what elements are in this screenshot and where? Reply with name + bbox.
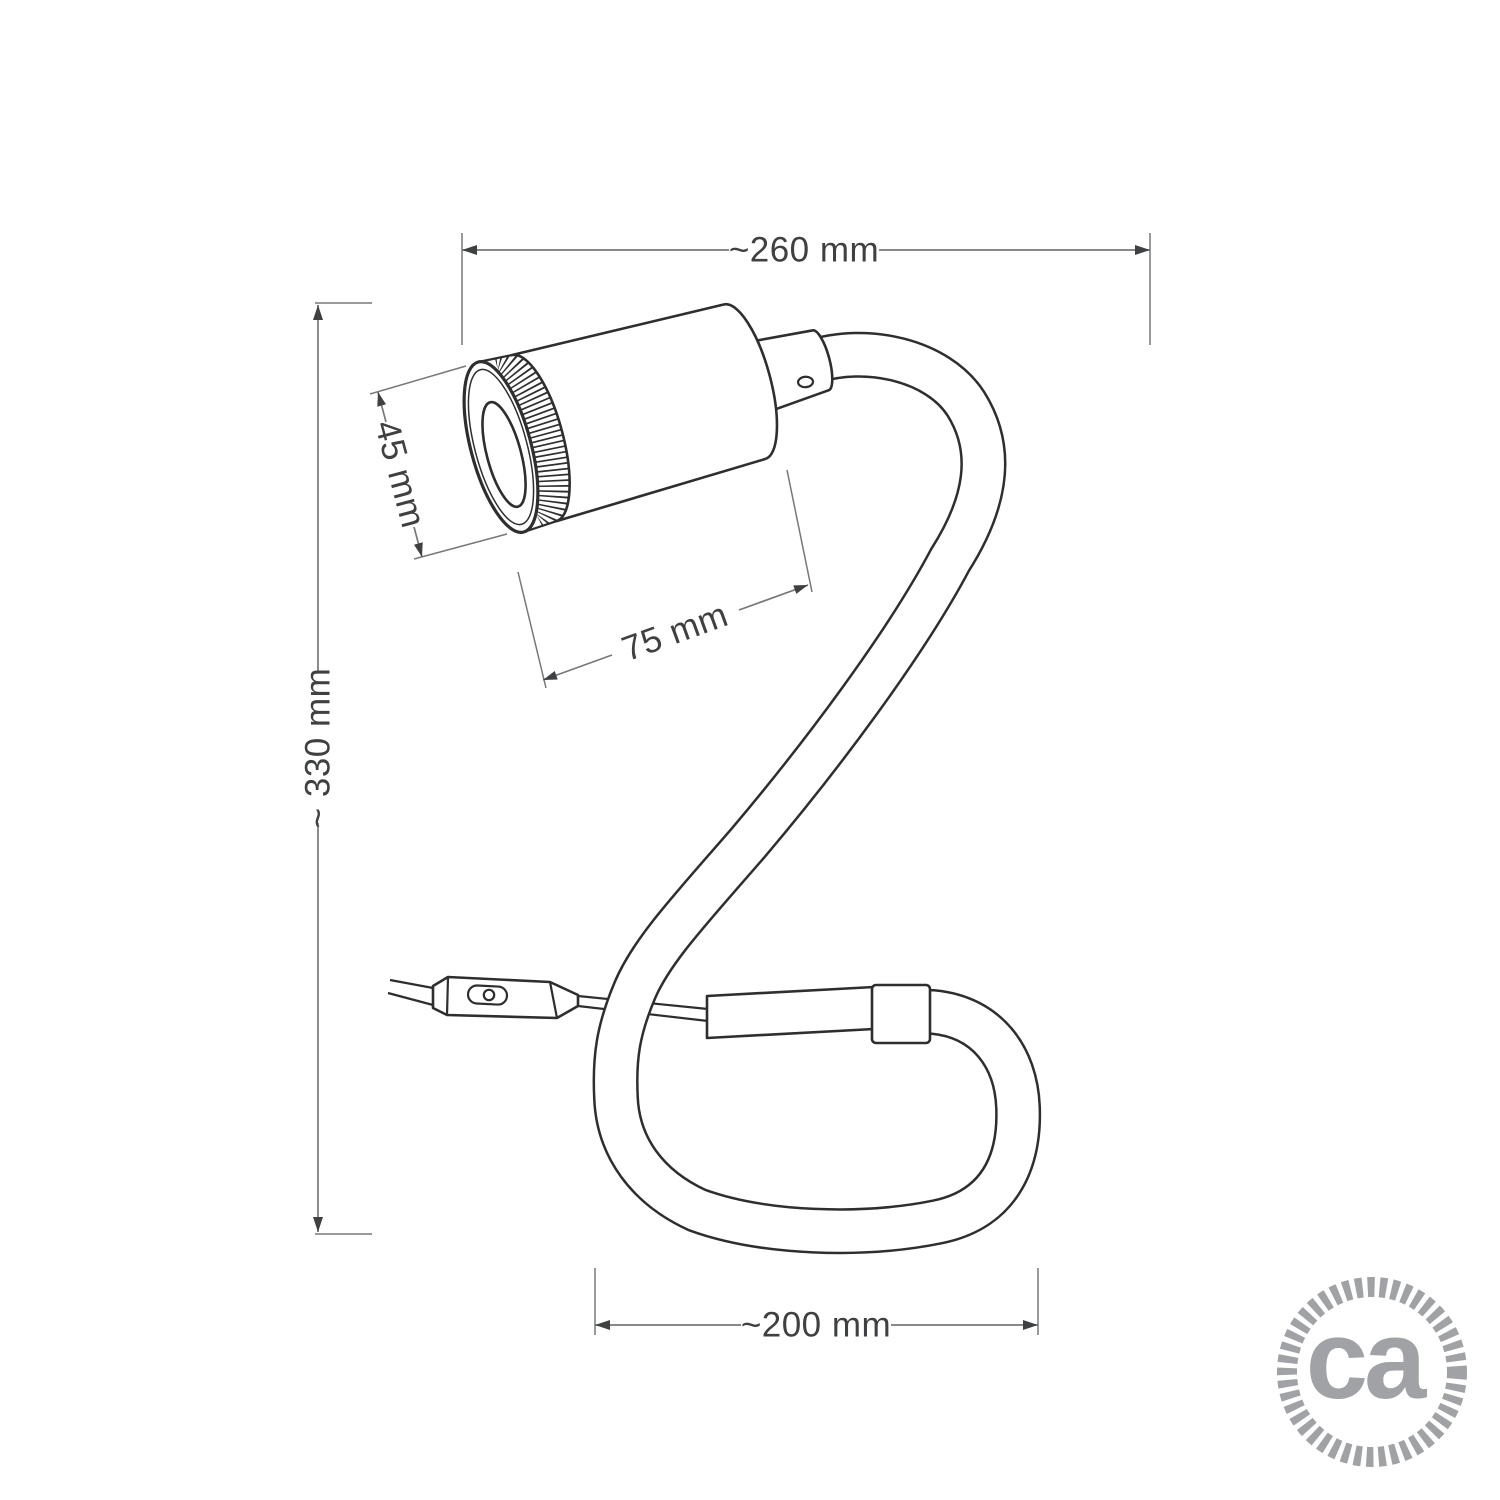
brand-logo: ca [1287, 1287, 1457, 1457]
dim-label-spot-diameter: 45 mm [367, 416, 433, 532]
transition-sleeve [707, 987, 874, 1038]
switch-slot [468, 985, 508, 1005]
dim-label-loop-width: ~200 mm [741, 1306, 891, 1345]
logo-text: ca [1306, 1297, 1427, 1422]
dim-label-spot-length: 75 mm [617, 595, 733, 669]
spotlight-head [449, 274, 852, 540]
extension-line [414, 534, 507, 559]
arrow-right-icon [1135, 245, 1150, 255]
arrow-left-icon [462, 245, 477, 255]
dimension-loop-width: ~200 mm [595, 1268, 1038, 1345]
arrow-icon [414, 542, 423, 557]
extension-line [787, 470, 812, 592]
diagram-canvas: ~260 mm ~ 330 mm 45 mm 75 mm ~200 mm [0, 0, 1500, 1500]
ferrule-collar [872, 985, 930, 1043]
arrow-left-icon [595, 1320, 610, 1330]
arrow-right-icon [1023, 1320, 1038, 1330]
dimension-overall-width: ~260 mm [462, 231, 1150, 346]
cord-left [388, 980, 433, 1005]
extension-line [370, 366, 466, 394]
arrow-icon [793, 585, 808, 594]
arrow-icon [377, 392, 386, 407]
dimension-overall-height: ~ 330 mm [299, 303, 373, 1234]
extension-line [518, 572, 546, 688]
inline-switch [433, 977, 578, 1018]
arrow-icon [543, 671, 558, 680]
arrow-up-icon [313, 305, 323, 320]
dim-label-overall-height: ~ 330 mm [299, 668, 338, 829]
dim-label-overall-width: ~260 mm [729, 231, 879, 270]
arrow-down-icon [313, 1217, 323, 1232]
cord-tube-transition [707, 985, 930, 1043]
